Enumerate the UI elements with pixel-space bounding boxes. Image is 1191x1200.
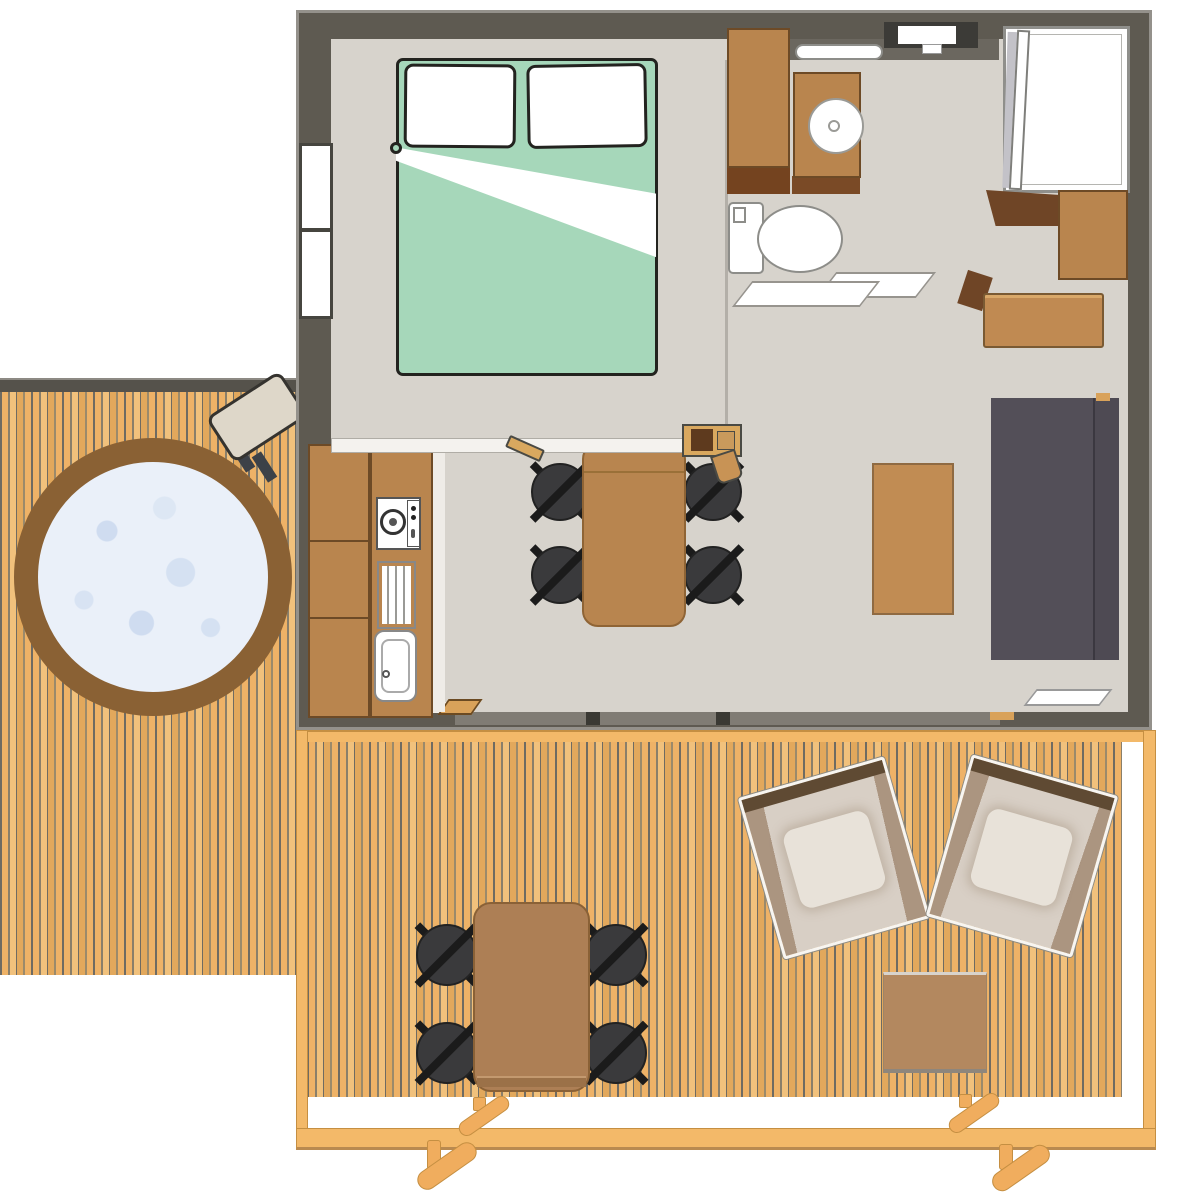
hob-knobs xyxy=(407,500,420,547)
counter-seam xyxy=(310,540,368,542)
hob-knob xyxy=(411,515,416,520)
bedroom-window xyxy=(299,143,333,319)
toilet-flush-handle xyxy=(733,207,746,223)
terrace-railing-left xyxy=(296,730,308,1150)
floor-plan xyxy=(0,0,1191,1200)
draining-board xyxy=(377,561,416,629)
chair-seat xyxy=(416,1022,478,1084)
chair-seat xyxy=(684,546,742,604)
chair-seat xyxy=(416,924,478,986)
outdoor-chair xyxy=(585,1022,647,1084)
sink-drain xyxy=(382,670,390,678)
terrace-railing-bottom xyxy=(296,1128,1156,1150)
chair-seat xyxy=(531,463,589,521)
stove-side xyxy=(717,431,735,450)
toilet-bowl xyxy=(757,205,843,273)
sofa-backrest xyxy=(1093,398,1119,660)
stove-firebox xyxy=(691,429,713,451)
sliding-door-stop xyxy=(586,712,600,725)
sofa xyxy=(991,398,1119,660)
outdoor-chair xyxy=(416,1022,478,1084)
chair-seat xyxy=(585,1022,647,1084)
kitchen-sink xyxy=(374,630,417,702)
dining-chair xyxy=(684,546,742,604)
pillow xyxy=(526,63,647,149)
wardrobe xyxy=(727,28,790,168)
wall-shelf xyxy=(1023,689,1112,706)
outdoor-side-table xyxy=(883,972,987,1073)
bathroom-window xyxy=(884,22,978,48)
lounge-cushion xyxy=(968,807,1075,909)
basin-drain xyxy=(828,120,840,132)
terrace-top-beam xyxy=(296,730,1156,742)
window-mullion xyxy=(302,228,330,232)
hob-knob xyxy=(411,506,416,511)
dining-chair xyxy=(531,463,589,521)
wooden-bench xyxy=(983,293,1104,348)
chair-seat xyxy=(585,924,647,986)
sliding-door-stop xyxy=(716,712,730,725)
counter-edge xyxy=(433,452,445,712)
terrace-railing-right xyxy=(1143,730,1156,1150)
window-handle xyxy=(922,44,942,54)
pillow xyxy=(404,64,517,149)
dark-shelf xyxy=(727,168,790,194)
counter-seam xyxy=(310,617,368,619)
corner-cabinet xyxy=(986,190,1060,226)
sink-basin xyxy=(381,639,410,693)
duvet-corner xyxy=(390,142,402,154)
wash-basin xyxy=(808,98,864,154)
coffee-table xyxy=(872,463,954,615)
bathroom-door-panel xyxy=(732,281,880,307)
storage-cabinet xyxy=(1058,190,1128,280)
outdoor-chair xyxy=(585,924,647,986)
towel-bar xyxy=(795,44,883,60)
kitchen-wall-counter xyxy=(308,444,370,718)
window-pane xyxy=(898,26,956,44)
hob-slot xyxy=(411,529,415,538)
hob-burner xyxy=(380,509,406,535)
chair-seat xyxy=(531,546,589,604)
dining-chair xyxy=(531,546,589,604)
outdoor-dining-table xyxy=(473,902,590,1092)
lounge-cushion xyxy=(781,809,888,911)
dining-table xyxy=(582,443,686,627)
sofa-foot xyxy=(1096,393,1110,401)
threshold-step xyxy=(990,712,1014,720)
hot-tub xyxy=(14,438,292,716)
outdoor-chair xyxy=(416,924,478,986)
sink-drawer xyxy=(792,176,860,194)
